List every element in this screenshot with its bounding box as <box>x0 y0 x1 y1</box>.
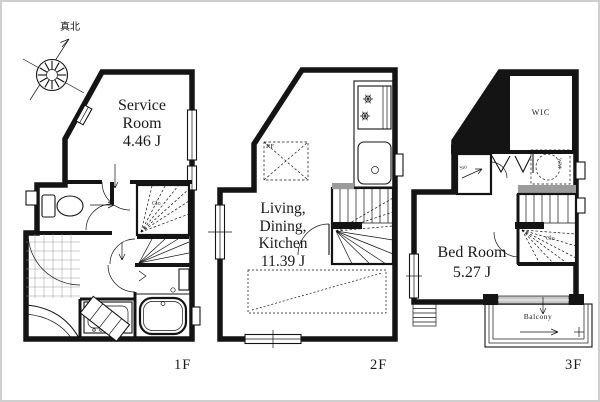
closet-label-1f: Clo <box>152 201 161 207</box>
north-label: 真北 <box>60 18 80 33</box>
floor-label-1f: 1F <box>174 357 191 374</box>
wic-label: WIC <box>508 108 574 117</box>
service-room-area: 4.46 J <box>94 133 190 151</box>
washer-label: WM <box>556 158 562 168</box>
bedroom-area: 5.27 J <box>410 263 534 283</box>
balcony-label: Balcony <box>486 312 590 321</box>
refrigerator-label: RF <box>266 143 274 150</box>
ldk-area: 11.39 J <box>235 253 331 271</box>
ldk-room-label: Living, Dining, Kitchen 11.39 J <box>235 200 331 270</box>
ldk-line3: Kitchen <box>235 235 331 253</box>
ldk-line2: Dining, <box>235 218 331 236</box>
roof-void <box>451 71 509 154</box>
storage-room <box>457 154 491 194</box>
floor-label-2f: 2F <box>370 357 387 374</box>
bedroom-line1: Bed Room <box>410 243 534 263</box>
compass-icon <box>23 39 84 100</box>
floor-plan-sheet: 真北 Service Room 4.46 J Clo Living, Dinin… <box>0 0 600 402</box>
bedroom-label: Bed Room 5.27 J <box>410 243 534 283</box>
ldk-line1: Living, <box>235 200 331 218</box>
service-room-label: Service Room 4.46 J <box>94 97 190 151</box>
floor-label-3f: 3F <box>565 357 582 374</box>
service-room-line1: Service <box>94 97 190 115</box>
counter <box>518 185 576 194</box>
exterior-steps <box>413 304 436 326</box>
stairs-icon <box>331 183 393 264</box>
service-room-line2: Room <box>94 115 190 133</box>
closet-label-3f: Clo <box>546 236 555 242</box>
